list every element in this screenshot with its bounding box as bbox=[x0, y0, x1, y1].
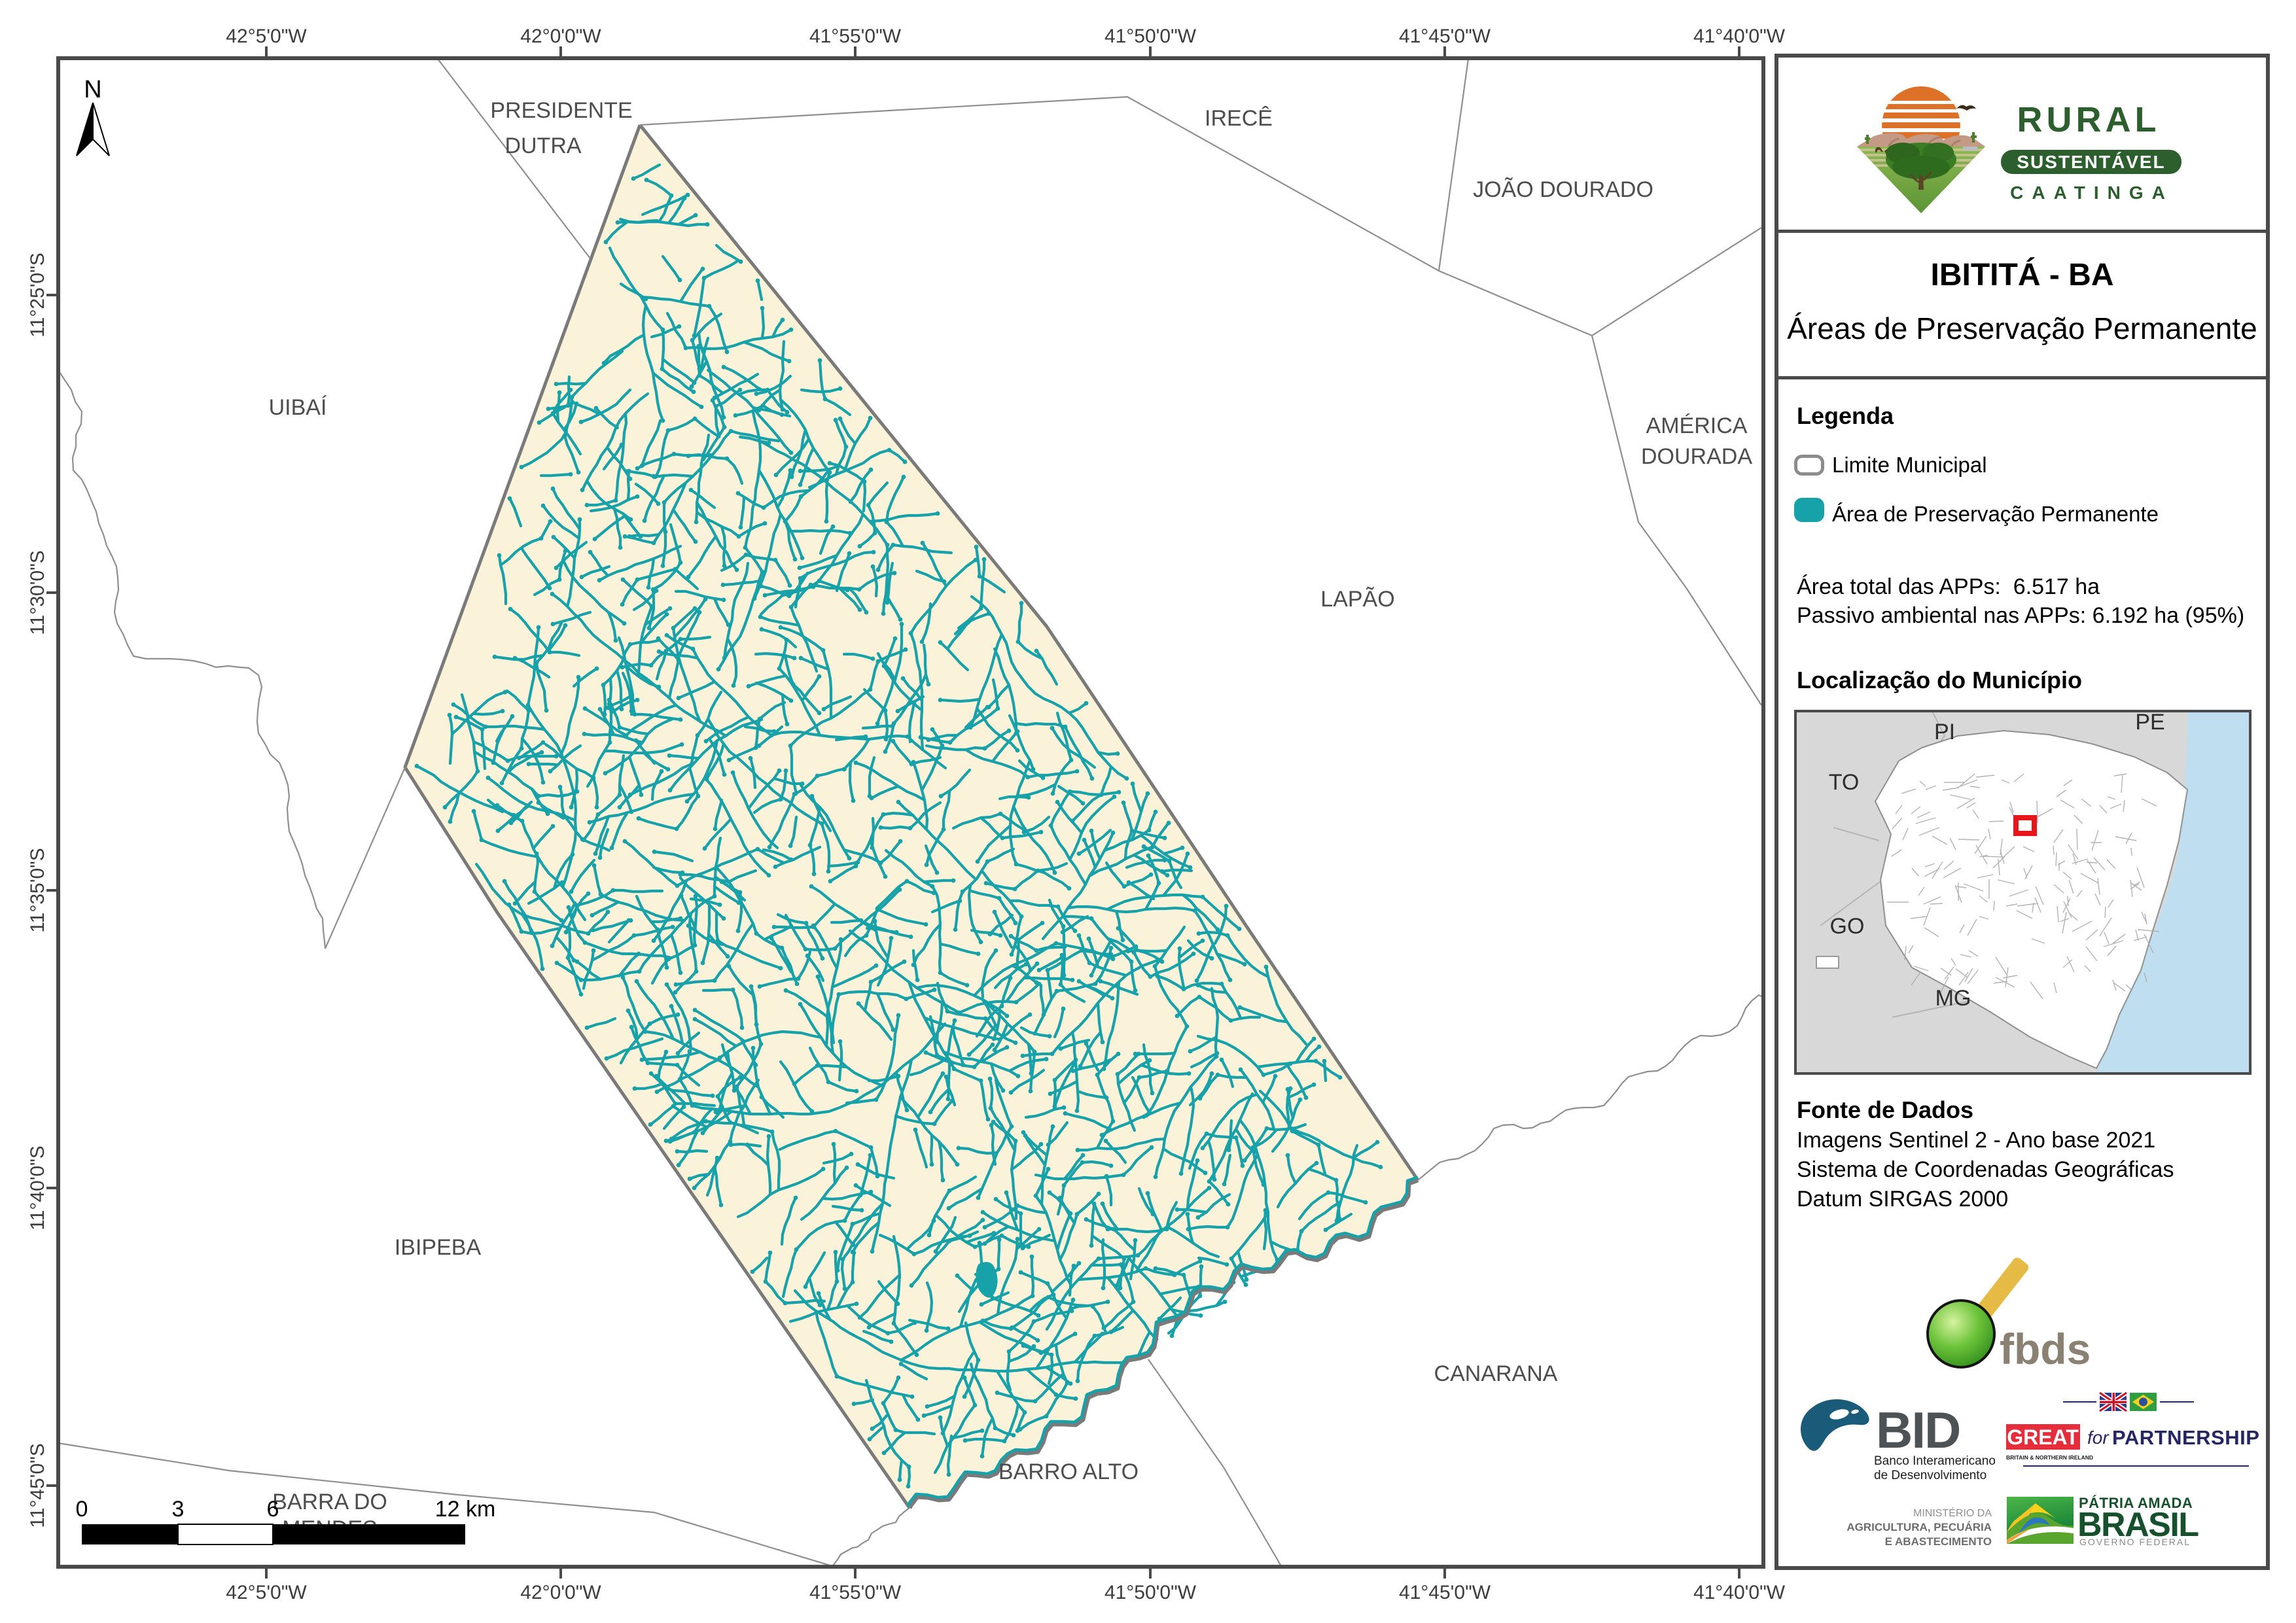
svg-text:42°0'0"W: 42°0'0"W bbox=[520, 26, 601, 47]
svg-text:42°5'0"W: 42°5'0"W bbox=[226, 1582, 307, 1603]
svg-text:N: N bbox=[84, 76, 101, 103]
svg-text:41°50'0"W: 41°50'0"W bbox=[1104, 26, 1197, 47]
svg-text:PI: PI bbox=[1934, 720, 1955, 744]
svg-text:de Desenvolvimento: de Desenvolvimento bbox=[1874, 1469, 1987, 1482]
svg-text:42°5'0"W: 42°5'0"W bbox=[226, 26, 307, 47]
svg-text:PRESIDENTE: PRESIDENTE bbox=[490, 98, 632, 123]
svg-text:41°50'0"W: 41°50'0"W bbox=[1104, 1582, 1197, 1603]
svg-text:11°35'0"S: 11°35'0"S bbox=[27, 848, 48, 933]
svg-text:CAATINGA: CAATINGA bbox=[2010, 183, 2174, 203]
svg-text:BID: BID bbox=[1876, 1401, 1960, 1459]
svg-text:GREAT: GREAT bbox=[2007, 1425, 2079, 1449]
svg-text:41°45'0"W: 41°45'0"W bbox=[1399, 1582, 1491, 1603]
svg-text:PE: PE bbox=[2135, 710, 2164, 735]
svg-text:MG: MG bbox=[1935, 986, 1971, 1011]
svg-text:GOVERNO FEDERAL: GOVERNO FEDERAL bbox=[2079, 1537, 2191, 1547]
svg-text:41°40'0"W: 41°40'0"W bbox=[1693, 26, 1786, 47]
svg-text:0: 0 bbox=[76, 1497, 88, 1522]
svg-text:12 km: 12 km bbox=[435, 1497, 496, 1522]
svg-text:Banco Interamericano: Banco Interamericano bbox=[1874, 1454, 1996, 1468]
svg-text:41°55'0"W: 41°55'0"W bbox=[809, 26, 902, 47]
svg-text:41°40'0"W: 41°40'0"W bbox=[1693, 1582, 1786, 1603]
svg-text:for: for bbox=[2087, 1427, 2110, 1448]
svg-text:CANARANA: CANARANA bbox=[1434, 1361, 1558, 1386]
svg-text:42°0'0"W: 42°0'0"W bbox=[520, 1582, 601, 1603]
svg-text:UIBAÍ: UIBAÍ bbox=[269, 395, 327, 420]
svg-text:11°30'0"S: 11°30'0"S bbox=[27, 550, 48, 635]
svg-text:GO: GO bbox=[1830, 914, 1865, 939]
svg-text:6: 6 bbox=[267, 1497, 279, 1522]
svg-text:BRITAIN & NORTHERN IRELAND: BRITAIN & NORTHERN IRELAND bbox=[2006, 1454, 2093, 1461]
svg-text:SUSTENTÁVEL: SUSTENTÁVEL bbox=[2017, 152, 2165, 172]
svg-text:IRECÊ: IRECÊ bbox=[1205, 106, 1273, 131]
svg-text:3: 3 bbox=[172, 1497, 185, 1522]
svg-text:41°45'0"W: 41°45'0"W bbox=[1399, 26, 1491, 47]
svg-text:IBIPEBA: IBIPEBA bbox=[395, 1235, 482, 1260]
svg-text:fbds: fbds bbox=[2000, 1325, 2091, 1373]
svg-text:TO: TO bbox=[1829, 770, 1860, 795]
svg-text:PARTNERSHIP: PARTNERSHIP bbox=[2112, 1426, 2259, 1449]
svg-text:BARRO ALTO: BARRO ALTO bbox=[998, 1459, 1139, 1484]
svg-text:RURAL: RURAL bbox=[2017, 100, 2161, 139]
svg-text:11°45'0"S: 11°45'0"S bbox=[27, 1443, 48, 1528]
svg-text:11°25'0"S: 11°25'0"S bbox=[27, 253, 48, 338]
svg-text:AMÉRICA: AMÉRICA bbox=[1646, 413, 1748, 438]
svg-text:DUTRA: DUTRA bbox=[504, 133, 581, 158]
svg-text:LAPÃO: LAPÃO bbox=[1320, 587, 1394, 612]
svg-text:DOURADA: DOURADA bbox=[1641, 444, 1752, 469]
svg-text:11°40'0"S: 11°40'0"S bbox=[27, 1145, 48, 1230]
svg-text:BARRA DO: BARRA DO bbox=[272, 1490, 387, 1514]
svg-text:JOÃO DOURADO: JOÃO DOURADO bbox=[1473, 177, 1653, 202]
svg-text:41°55'0"W: 41°55'0"W bbox=[809, 1582, 902, 1603]
